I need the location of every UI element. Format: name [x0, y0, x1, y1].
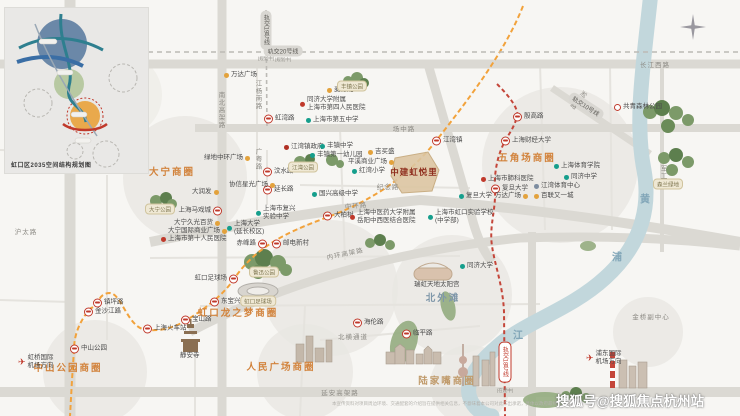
metro-station-label: 殷高路 — [524, 113, 544, 121]
business-circle-label: 人民广场商圈 — [246, 359, 315, 373]
metro-station-icon — [210, 298, 219, 307]
airplane-icon: ✈ — [18, 358, 26, 367]
poi-venue: 江湾体育中心 — [534, 182, 580, 190]
metro-station-label: 上海马戏城 — [179, 207, 212, 215]
poi-shop: 平溪商业广场 — [348, 158, 394, 166]
poi-shop: 大宁久光百货 — [174, 219, 220, 227]
poi-label: 上海市虹口实验学校(中学部) — [435, 209, 494, 225]
poi-school: 上海市虹口实验学校(中学部) — [428, 209, 494, 225]
shopping-icon — [523, 194, 528, 199]
poi-label: 协信星光广场 — [229, 181, 268, 189]
road-label: 南北高架路 — [215, 91, 225, 129]
poi-label: 江湾镇政府 — [291, 143, 324, 151]
metro-station: 大柏树 — [323, 212, 354, 221]
metro-line-pill: 轨交19号线 — [261, 11, 272, 50]
school-icon — [460, 264, 465, 269]
poi-label: 万达广场 — [231, 71, 257, 79]
metro-station: 殷高路 — [513, 113, 544, 122]
poi-label: 上海市复兴实验中学 — [263, 205, 296, 221]
poi-shop: 万达广场 — [224, 71, 257, 79]
metro-station-label: 海伦路 — [364, 319, 384, 327]
watermark: 搜狐号@搜狐焦点杭州站 — [556, 390, 704, 410]
business-circle-label: 五角场商圈 — [498, 150, 556, 164]
inset-caption: 虹口区2035空间结构规划图 — [11, 160, 91, 169]
shopping-icon — [389, 160, 394, 165]
poi-shop: 百联又一城 — [534, 192, 574, 200]
road-label: 广粤路 — [252, 148, 262, 171]
metro-station: 中山公园 — [70, 345, 107, 354]
metro-station: 上海火车站 — [143, 325, 187, 334]
poi-label: 复旦大学 — [466, 192, 492, 200]
poi-label: 平溪商业广场 — [348, 158, 387, 166]
park-name-pill: 江湾公园 — [288, 162, 318, 173]
park-name-pill: 虹口足球场 — [240, 296, 276, 307]
poi-label: 百联又一城 — [541, 192, 574, 200]
hospital-icon — [481, 177, 486, 182]
poi-label: 吉买盛 — [375, 148, 395, 156]
river-name-char: 浦 — [612, 249, 622, 264]
school-icon — [554, 164, 559, 169]
school-icon — [564, 175, 569, 180]
poi-plain: 静安寺 — [180, 352, 200, 360]
poi-gov: 江湾镇政府 — [284, 143, 324, 151]
park-name-pill: 大宁公园 — [145, 204, 175, 215]
poi-school: 上海市第五中学 — [306, 116, 359, 124]
poi-school: 丰镇中学 — [320, 142, 353, 150]
poi-school: 上海市复兴实验中学 — [256, 205, 296, 221]
project-label: 中建虹悦里 — [390, 166, 438, 178]
school-icon — [352, 169, 357, 174]
poi-label: 丰镇中学 — [327, 142, 353, 150]
metro-line-pill-sub: (规划中) — [258, 56, 275, 62]
poi-hospital: 上海市第十人民医院 — [161, 235, 227, 243]
school-icon — [459, 194, 464, 199]
metro-station-icon — [353, 319, 362, 328]
metro-station-label: 金沙江路 — [95, 308, 121, 316]
shopping-icon — [214, 190, 219, 195]
school-icon — [312, 192, 317, 197]
metro-station-label: 延长路 — [274, 186, 294, 194]
poi-label: 万达广场 — [495, 192, 521, 200]
poi-shop: 大润发 — [192, 188, 219, 196]
poi-label: 上海市肺科医院 — [488, 175, 534, 183]
river-name-char: 江 — [513, 327, 523, 342]
metro-station-icon — [213, 207, 222, 216]
poi-label: 上海大学(延长校区) — [234, 220, 264, 236]
metro-station-icon — [501, 137, 510, 146]
metro-station-label: 江湾镇 — [443, 137, 463, 145]
road-label: 金桥副中心 — [632, 311, 670, 321]
poi-shop: 绿地中环广场 — [204, 154, 250, 162]
metro-station-icon — [84, 308, 93, 317]
shopping-icon — [327, 88, 332, 93]
poi-plain: 瑞虹天地太阳宫 — [414, 281, 460, 289]
poi-label: 浦东国际机场方向 — [596, 350, 622, 366]
poi-school: 同济中学 — [564, 173, 597, 181]
poi-label: 共青森林公园 — [623, 103, 662, 111]
shopping-icon — [368, 150, 373, 155]
airplane-icon: ✈ — [586, 354, 594, 363]
metro-station-label: 邮电新村 — [283, 240, 309, 248]
metro-station-label: 上海火车站 — [154, 325, 187, 333]
poi-spot: 共青森林公园 — [614, 103, 662, 111]
metro-station: 海伦路 — [353, 319, 384, 328]
poi-label: 同济中学 — [571, 173, 597, 181]
hospital-icon — [300, 102, 305, 107]
metro-station-label: 虹湾路 — [275, 115, 295, 123]
poi-label: 同济大学附属上海市第四人民医院 — [307, 96, 366, 112]
metro-station-label: 赤峰路 — [237, 240, 257, 248]
school-icon — [256, 211, 261, 216]
poi-label: 大宁国际商业广场 — [168, 227, 220, 235]
metro-station: 宝山路 — [181, 316, 212, 325]
metro-station: 上海马戏城 — [179, 207, 223, 216]
shopping-icon — [224, 73, 229, 78]
metro-station: 邮电新村 — [272, 240, 309, 249]
metro-station-icon — [93, 299, 102, 308]
poi-shop: 万达广场 — [495, 192, 528, 200]
metro-station-icon — [258, 240, 267, 249]
shopping-icon — [270, 183, 275, 188]
metro-station-icon — [70, 345, 79, 354]
poi-plane: ✈浦东国际机场方向 — [586, 350, 622, 366]
metro-station: 上海财经大学 — [501, 137, 551, 146]
shopping-icon — [534, 194, 539, 199]
compass-icon — [680, 14, 706, 40]
metro-line-pill-sub: (规划中) — [275, 57, 292, 63]
poi-label: 虹桥国际机场方向 — [28, 354, 54, 370]
metro-line-pill-sub: (在建中) — [497, 388, 514, 394]
park-gate-icon — [614, 104, 621, 111]
road-label: 江杨南路 — [252, 80, 262, 110]
map-canvas: 虹口区2035空间结构规划图 中建虹悦里 大宁商圈五角场商圈虹口龙之梦商圈北外滩… — [0, 0, 740, 416]
business-circle-label: 大宁商圈 — [149, 164, 195, 178]
school-icon — [306, 118, 311, 123]
school-icon — [320, 144, 325, 149]
poi-label: 绿地中环广场 — [204, 154, 243, 162]
poi-school: 上海大学(延长校区) — [227, 220, 264, 236]
school-icon — [428, 215, 433, 220]
metro-station-icon — [143, 325, 152, 334]
road-label: 长江西路 — [640, 59, 670, 69]
poi-label: 瑞虹天地太阳宫 — [414, 281, 460, 289]
metro-line-pill: 轨交18号线 — [499, 342, 512, 383]
poi-school: 红湾小学 — [352, 167, 385, 175]
poi-label: 静安寺 — [180, 352, 200, 360]
metro-station-icon — [402, 330, 411, 339]
poi-plane: ✈虹桥国际机场方向 — [18, 354, 54, 370]
road-label: 纪念路 — [377, 181, 400, 191]
business-circle-label: 北外滩 — [426, 290, 461, 304]
metro-station-label: 临平路 — [413, 330, 433, 338]
river-name-char: 黄 — [640, 191, 650, 206]
poi-school: 复旦大学 — [459, 192, 492, 200]
poi-label: 上海市第十人民医院 — [168, 235, 227, 243]
metro-station: 虹口足球场 — [195, 275, 239, 284]
poi-hospital: 同济大学附属上海市第四人民医院 — [300, 96, 366, 112]
metro-station-icon — [323, 212, 332, 221]
hospital-icon — [161, 237, 166, 242]
poi-label: 江湾体育中心 — [541, 182, 580, 190]
road-label: 北横通道 — [338, 331, 368, 341]
poi-shop: 吉买盛 — [368, 148, 395, 156]
government-icon — [284, 145, 289, 150]
business-circle-label: 陆家嘴商圈 — [418, 373, 476, 387]
metro-station-label: 中山公园 — [81, 345, 107, 353]
metro-station-label: 上海财经大学 — [512, 137, 551, 145]
inset-planning-diagram: 虹口区2035空间结构规划图 — [5, 8, 148, 173]
metro-station-icon — [264, 115, 273, 124]
metro-station-icon — [229, 275, 238, 284]
metro-station-icon — [272, 240, 281, 249]
metro-station-label: 虹口足球场 — [195, 275, 228, 283]
shopping-icon — [245, 156, 250, 161]
poi-label: 红湾小学 — [359, 167, 385, 175]
poi-school: 同济大学 — [460, 262, 493, 270]
hospital-icon — [350, 215, 355, 220]
poi-label: 大润发 — [192, 188, 212, 196]
poi-label: 上海中医药大学附属岳阳中西医结合医院 — [357, 209, 416, 225]
metro-station: 江湾镇 — [432, 137, 463, 146]
road-label: 沪太路 — [15, 226, 38, 236]
road-label: 场中路 — [393, 123, 416, 133]
park-name-pill: 鲁迅公园 — [249, 267, 279, 278]
poi-label: 同济大学 — [467, 262, 493, 270]
metro-station: 临平路 — [402, 330, 433, 339]
poi-shop: 大宁国际商业广场 — [168, 227, 227, 235]
poi-school: 上海体育学院 — [554, 162, 600, 170]
poi-hospital: 上海市肺科医院 — [481, 175, 534, 183]
park-name-pill: 森兰绿地 — [653, 179, 683, 190]
poi-label: 国兴高级中学 — [319, 190, 358, 198]
shopping-icon — [215, 221, 220, 226]
metro-station: 赤峰路 — [237, 240, 268, 249]
metro-station-icon — [432, 137, 441, 146]
metro-station-label: 镇坪路 — [104, 299, 124, 307]
metro-station-icon — [513, 113, 522, 122]
venue-icon — [534, 184, 539, 189]
metro-station-icon — [181, 316, 190, 325]
road-label: 延安高架路 — [321, 387, 359, 397]
poi-label: 大宁久光百货 — [174, 219, 213, 227]
metro-station: 金沙江路 — [84, 308, 121, 317]
school-icon — [310, 153, 315, 158]
poi-school: 国兴高级中学 — [312, 190, 358, 198]
metro-station: 虹湾路 — [264, 115, 295, 124]
metro-station: 镇坪路 — [93, 299, 124, 308]
poi-hospital: 上海中医药大学附属岳阳中西医结合医院 — [350, 209, 416, 225]
park-name-pill: 丰镇公园 — [337, 81, 367, 92]
metro-station-icon — [263, 168, 272, 177]
poi-shop: 协信星光广场 — [229, 181, 275, 189]
poi-label: 上海体育学院 — [561, 162, 600, 170]
school-icon — [227, 226, 232, 231]
poi-label: 上海市第五中学 — [313, 116, 359, 124]
metro-station-label: 宝山路 — [192, 316, 212, 324]
